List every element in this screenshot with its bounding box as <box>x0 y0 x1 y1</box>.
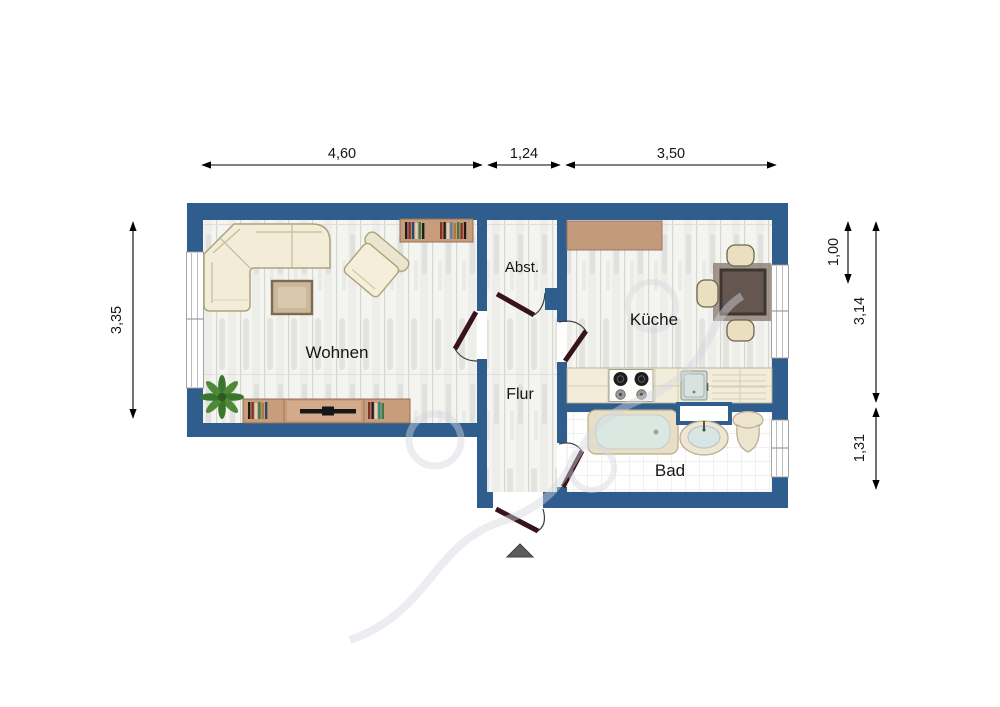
dimension-label-right-3: 1,31 <box>852 434 868 462</box>
wall-wohnen-bottom <box>187 423 487 437</box>
wall-bottom <box>543 492 788 508</box>
window-wohnen-left <box>187 252 204 388</box>
room-label-kueche: Küche <box>630 310 678 329</box>
dimension-label-right-2: 3,14 <box>852 297 868 325</box>
floor-plan-drawing: Wohnen Abst. Flur Küche Bad 4,60 1,24 3,… <box>0 0 1000 707</box>
window-kueche-right <box>772 265 789 358</box>
wall-flur-left-upper <box>477 220 487 311</box>
coffee-table <box>272 281 312 314</box>
floor-plan-page: Wohnen Abst. Flur Küche Bad 4,60 1,24 3,… <box>0 0 1000 707</box>
room-label-flur: Flur <box>506 386 534 403</box>
dimension-label-top-3: 3,50 <box>657 146 685 162</box>
room-label-abst: Abst. <box>505 259 539 276</box>
dimension-label-left-1: 3,35 <box>109 306 125 334</box>
window-bad-right <box>772 420 789 477</box>
wall-flur-right-upper <box>557 220 567 322</box>
dining-chair <box>697 280 718 307</box>
wall-bottom-left-stub <box>477 492 493 508</box>
kitchen-wall-cabinet <box>567 221 662 250</box>
mirror-shelf <box>678 404 730 423</box>
dining-chair <box>727 320 754 341</box>
dining-chair <box>727 245 754 266</box>
dimension-label-top-2: 1,24 <box>510 146 538 162</box>
tv-sideboard <box>243 399 410 423</box>
plant <box>200 375 244 419</box>
wall-flur-left-lower <box>477 359 487 508</box>
dimension-label-right-1: 1,00 <box>826 238 842 266</box>
wall-flur-right-middle <box>557 362 567 443</box>
room-label-bad: Bad <box>655 461 685 480</box>
dimension-label-top-1: 4,60 <box>328 146 356 162</box>
room-label-wohnen: Wohnen <box>305 343 368 362</box>
washbasin <box>680 421 728 455</box>
wall-top <box>187 203 788 220</box>
wall-abst-door-stub <box>545 288 557 310</box>
wall-bookshelf <box>400 219 473 242</box>
sideboard-books-right <box>368 402 384 419</box>
